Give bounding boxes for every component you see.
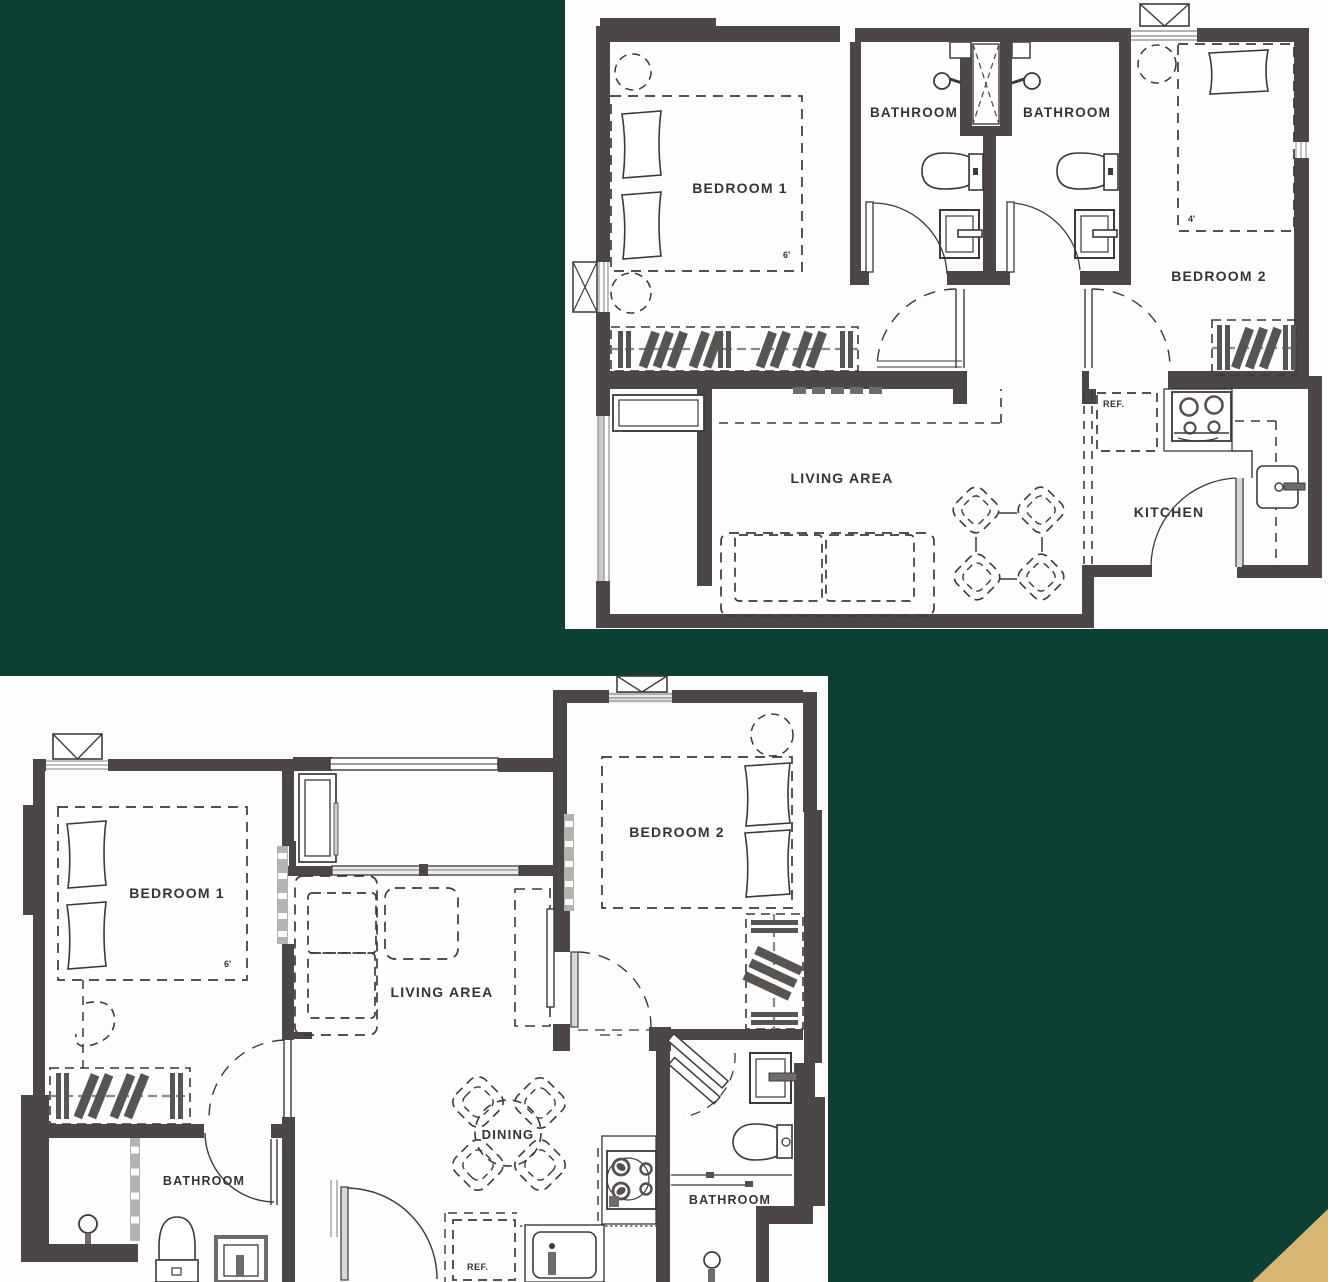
svg-text:REF.: REF. <box>467 1262 489 1272</box>
svg-text:BATHROOM: BATHROOM <box>163 1174 245 1188</box>
svg-text:KITCHEN: KITCHEN <box>1134 504 1205 520</box>
svg-text:BATHROOM: BATHROOM <box>1023 105 1111 120</box>
svg-text:6': 6' <box>224 959 231 969</box>
svg-text:BEDROOM 1: BEDROOM 1 <box>692 180 788 196</box>
svg-text:LIVING AREA: LIVING AREA <box>791 470 894 486</box>
svg-text:4': 4' <box>1188 214 1195 224</box>
svg-text:REF.: REF. <box>1103 399 1125 409</box>
svg-text:BATHROOM: BATHROOM <box>689 1193 771 1207</box>
svg-text:BEDROOM 2: BEDROOM 2 <box>629 824 725 840</box>
svg-text:LIVING AREA: LIVING AREA <box>391 984 494 1000</box>
svg-text:6': 6' <box>783 250 790 260</box>
svg-text:BATHROOM: BATHROOM <box>870 105 958 120</box>
svg-text:DINING: DINING <box>482 1127 535 1142</box>
svg-text:BEDROOM 1: BEDROOM 1 <box>129 885 225 901</box>
svg-text:BEDROOM 2: BEDROOM 2 <box>1171 268 1267 284</box>
